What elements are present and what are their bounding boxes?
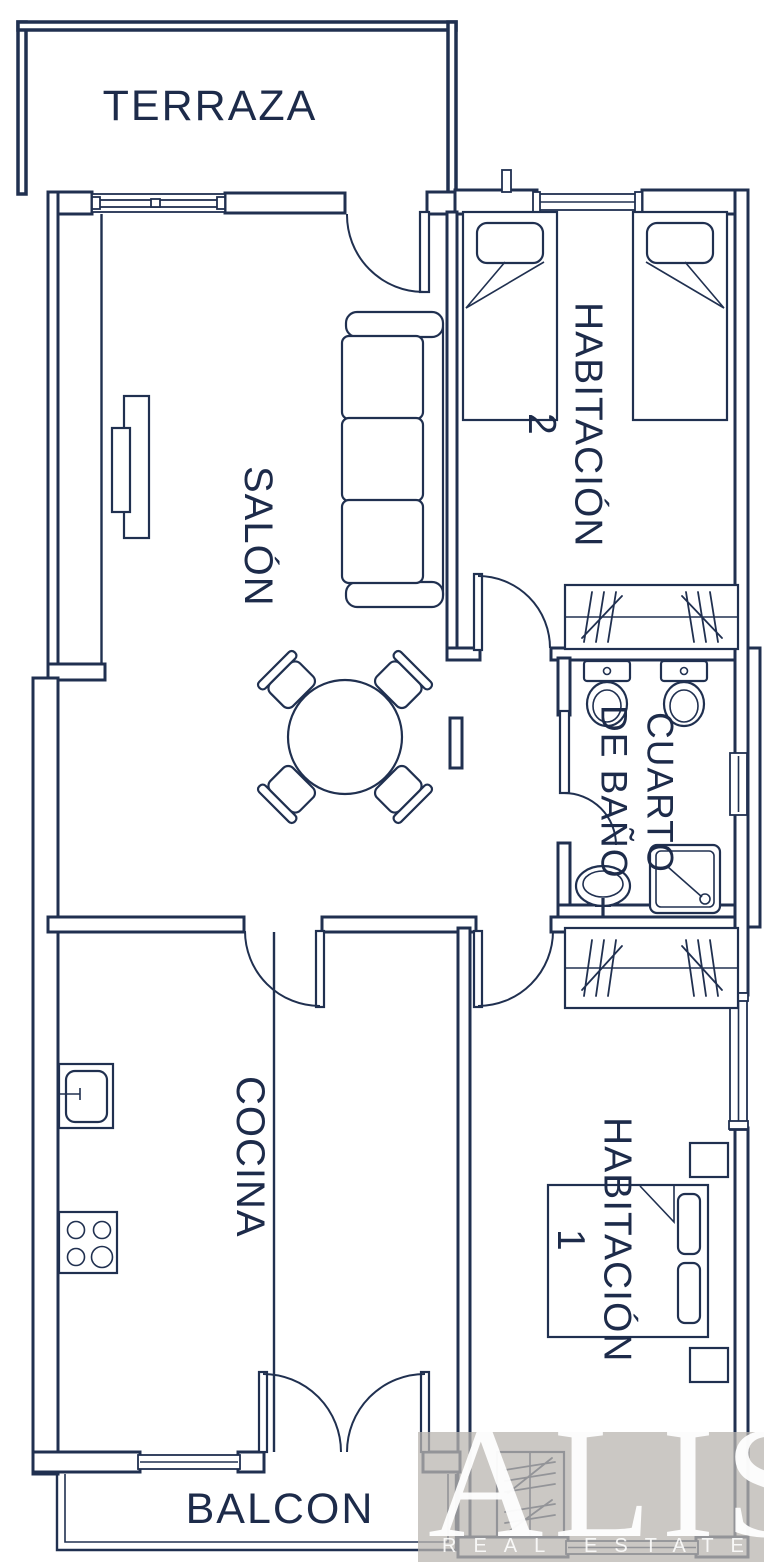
dining-table-set <box>256 649 433 824</box>
window-icon <box>729 993 748 1130</box>
balcony-french-doors-icon <box>259 1372 429 1452</box>
window-icon <box>730 753 747 815</box>
room-label-habitacion2-name: HABITACIÓN <box>564 282 611 567</box>
room-label-cuarto-de-bano: CUARTO DE BAÑO <box>590 672 683 912</box>
room-label-salon: SALÓN <box>234 466 282 607</box>
room-label-cocina: COCINA <box>226 1076 274 1238</box>
nightstand-icon <box>690 1348 728 1382</box>
room-label-habitacion1-name: HABITACIÓN <box>593 1085 640 1395</box>
wardrobe-icon <box>565 585 738 649</box>
window-icon <box>138 1455 240 1469</box>
kitchen-sink-icon <box>59 1064 113 1128</box>
radiator-icon <box>112 396 149 538</box>
room-label-habitacion1: HABITACIÓN 1 <box>546 1085 640 1395</box>
single-bed-icon <box>633 212 727 420</box>
stove-icon <box>59 1212 117 1273</box>
round-table-icon <box>288 680 402 794</box>
room-label-habitacion1-number: 1 <box>546 1085 593 1395</box>
sliding-window-icon <box>92 194 225 212</box>
window-icon <box>533 192 642 212</box>
sofa-icon <box>342 312 443 607</box>
cocina-door-icon <box>245 931 324 1007</box>
habitacion2-door-icon <box>474 574 550 650</box>
agency-logo-tagline: REAL ESTATE <box>442 1535 761 1558</box>
floor-plan: TERRAZA SALÓN HABITACIÓN 2 CUARTO DE BAÑ… <box>0 0 764 1562</box>
room-label-balcon: BALCON <box>150 1485 410 1534</box>
room-label-terraza: TERRAZA <box>60 82 360 131</box>
agency-logo: ALISÚ REAL ESTATE <box>418 1432 764 1562</box>
entrance-door-icon <box>347 212 429 292</box>
habitacion1-door-icon <box>474 931 553 1007</box>
room-label-habitacion2: HABITACIÓN 2 <box>517 282 611 567</box>
room-label-bano-line1: CUARTO <box>636 672 682 912</box>
party-wall-stub <box>502 170 511 192</box>
room-label-habitacion2-number: 2 <box>517 282 564 567</box>
room-label-bano-line2: DE BAÑO <box>590 672 636 912</box>
wardrobe-icon <box>565 928 738 1008</box>
nightstand-icon <box>690 1143 728 1177</box>
